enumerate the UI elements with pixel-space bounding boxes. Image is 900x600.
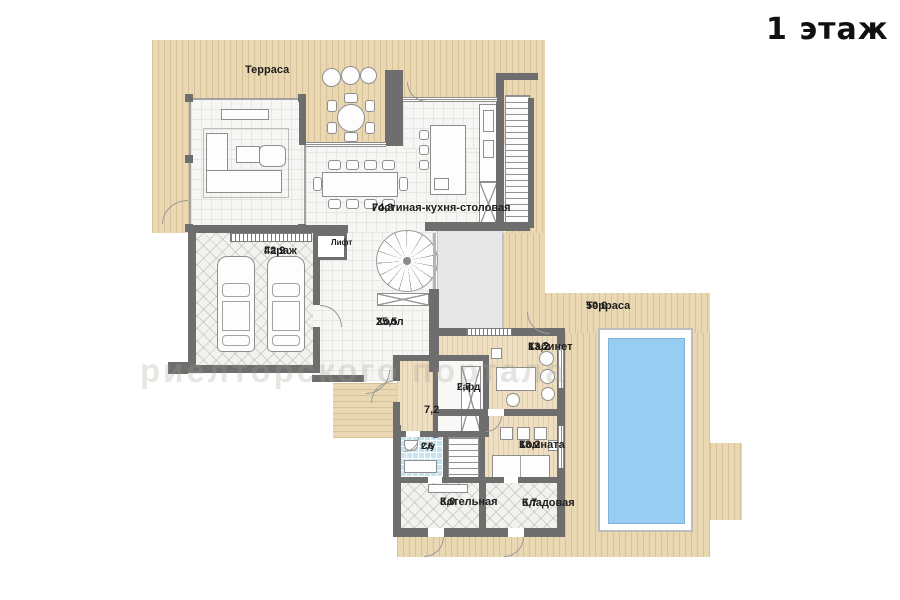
- bar-stool: [419, 145, 429, 155]
- wall: [393, 402, 400, 427]
- sink: [404, 460, 437, 473]
- terrace-right-top-strip: [545, 293, 710, 333]
- wall: [425, 222, 530, 231]
- terrace-pouf: [322, 68, 341, 87]
- desk-chair: [506, 393, 520, 407]
- terrace-pouf: [341, 66, 360, 85]
- glass-partition: [433, 233, 436, 291]
- terrace-right-bump: [710, 443, 742, 520]
- armchair: [259, 145, 286, 167]
- terrace-chair: [344, 93, 358, 103]
- room-area: 7,2: [424, 404, 439, 416]
- glass-post: [185, 155, 193, 163]
- room-area: 25,5: [376, 316, 397, 328]
- room-area: 74,8: [372, 202, 393, 214]
- door-gap: [508, 528, 524, 537]
- terrace-chair: [365, 122, 375, 134]
- wall: [188, 225, 196, 365]
- floor-plan-canvas: Терраса Гостиная-кухня-столовая 74,8 Гар…: [0, 0, 900, 600]
- car-roof: [272, 301, 300, 331]
- car-rear-window: [272, 335, 300, 346]
- room-name: Терраса: [245, 64, 289, 76]
- terrace-round-table: [337, 104, 365, 132]
- boiler-unit: [428, 484, 468, 493]
- wall: [299, 99, 306, 145]
- car-roof: [222, 301, 250, 331]
- kitchen-stove: [483, 110, 494, 132]
- page-title: 1 этаж: [766, 12, 889, 47]
- room-area: 42,9: [264, 245, 285, 257]
- dining-chair: [328, 199, 341, 209]
- wall-column: [385, 70, 403, 146]
- terrace-chair: [344, 132, 358, 142]
- car: [217, 256, 255, 352]
- room-area: 6,7: [522, 497, 537, 509]
- wall: [528, 98, 534, 228]
- dining-chair: [346, 160, 359, 170]
- terrace-chair: [365, 100, 375, 112]
- dining-chair: [399, 177, 408, 191]
- pillow: [500, 427, 513, 440]
- dining-table: [322, 172, 398, 197]
- wall: [496, 73, 538, 80]
- island-hob: [434, 178, 449, 190]
- watermark: риелторского портала: [140, 352, 567, 390]
- pool: [598, 328, 693, 532]
- dining-chair: [364, 160, 377, 170]
- door-gap: [504, 477, 518, 483]
- window-band: [466, 328, 512, 336]
- kitchen-sink: [483, 140, 494, 158]
- wall: [393, 477, 563, 483]
- dining-chair: [346, 199, 359, 209]
- room-area: 50,0: [586, 300, 607, 312]
- terrace-chair: [327, 122, 337, 134]
- car: [267, 256, 305, 352]
- terrace-chair: [327, 100, 337, 112]
- hall-bench: [377, 293, 429, 306]
- wall: [443, 437, 448, 477]
- door-gap: [428, 528, 444, 537]
- wall: [479, 416, 485, 483]
- car-windshield: [272, 283, 300, 297]
- room-name: Лифт: [331, 239, 352, 248]
- room-area: 8,0: [440, 496, 455, 508]
- door-gap: [428, 477, 442, 483]
- bar-stool: [419, 130, 429, 140]
- car-rear-window: [222, 335, 250, 346]
- room-area: 18,2: [519, 439, 540, 451]
- door-gap: [488, 409, 504, 416]
- dining-chair: [382, 160, 395, 170]
- glass-post: [185, 94, 193, 102]
- dining-chair: [328, 160, 341, 170]
- garage-door: [230, 233, 312, 242]
- bar-stool: [419, 160, 429, 170]
- tv-unit: [221, 109, 269, 120]
- room-area: 2,6: [421, 441, 434, 451]
- terrace-pouf: [360, 67, 377, 84]
- spiral-hub: [403, 257, 411, 265]
- sofa-bottom: [206, 170, 282, 193]
- dining-chair: [313, 177, 322, 191]
- wall: [188, 225, 348, 233]
- pool-water: [608, 338, 685, 524]
- car-windshield: [222, 283, 250, 297]
- entry-porch: [437, 230, 503, 330]
- coffee-table: [236, 146, 260, 163]
- window: [306, 142, 386, 147]
